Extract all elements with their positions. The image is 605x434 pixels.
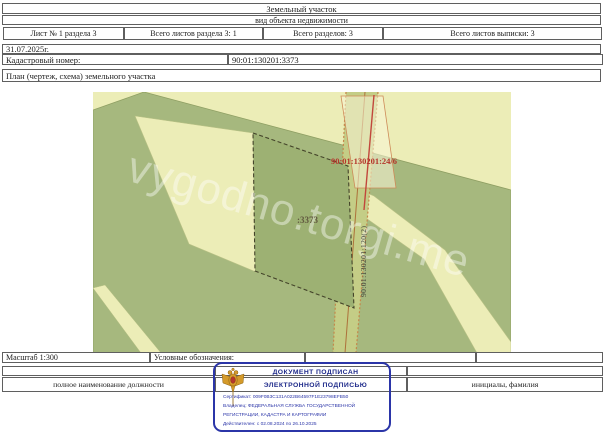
scale-label: Масштаб 1:300 (2, 352, 150, 363)
neighbor-parcel-label: 90:01:130201:24/6 (331, 156, 397, 166)
footer-name-cell: инициалы, фамилия (407, 377, 603, 392)
plan-header-row: План (чертеж, схема) земельного участка (2, 69, 601, 82)
doc-subtitle-row: вид объекта недвижимости (2, 15, 601, 25)
meta-cell-sheet: Лист № 1 раздела 3 (3, 27, 124, 40)
meta-cell-sections-total: Всего разделов: 3 (263, 27, 383, 40)
cadastral-value: 90:01:130201:3373 (228, 54, 603, 65)
stamp-line2: ЭЛЕКТРОННОЙ ПОДПИСЬЮ (245, 382, 386, 389)
meta-cell-extract-sheets: Всего листов выписки: 3 (383, 27, 602, 40)
doc-title-row: Земельный участок (2, 3, 601, 14)
extract-date: 31.07.2025г. (6, 44, 49, 54)
strip-cadastral-label: 90:01:130201:120(2) (359, 226, 368, 297)
legend-empty-cell-2 (476, 352, 603, 363)
stamp-owner-line1: Владелец: ФЕДЕРАЛЬНАЯ СЛУЖБА ГОСУДАРСТВЕ… (223, 404, 386, 409)
cadastral-extract-page: Земельный участок вид объекта недвижимос… (0, 0, 605, 434)
digital-signature-stamp: ДОКУМЕНТ ПОДПИСАН ЭЛЕКТРОННОЙ ПОДПИСЬЮ С… (213, 362, 391, 432)
plan-header: План (чертеж, схема) земельного участка (6, 71, 155, 81)
rosreestr-eagle-icon (220, 366, 246, 408)
parcel-number-label: :3373 (297, 215, 318, 225)
cadastral-label: Кадастровый номер: (2, 54, 228, 65)
footer-position-cell: полное наименование должности (2, 377, 215, 392)
stamp-owner-line2: РЕГИСТРАЦИИ, КАДАСТРА И КАРТОГРАФИИ (223, 413, 386, 418)
stamp-line1: ДОКУМЕНТ ПОДПИСАН (245, 369, 386, 376)
parcel-plan-map: vygodno.torgi.me 90:01:130201:24/6 :3373… (93, 92, 511, 353)
date-row: 31.07.2025г. (2, 44, 601, 54)
signature-blank-cell-1 (2, 366, 215, 376)
stamp-validity: Действителен: с 02.08.2024 по 26.10.2025 (223, 422, 386, 427)
stamp-certificate: Сертификат: 009F0B3C131A022B64597F1E2379… (223, 395, 386, 400)
doc-title: Земельный участок (266, 4, 336, 14)
parcel-plan-svg: vygodno.torgi.me 90:01:130201:24/6 :3373… (93, 92, 511, 353)
doc-subtitle: вид объекта недвижимости (255, 16, 348, 25)
meta-cell-sheets-of-section: Всего листов раздела 3: 1 (124, 27, 263, 40)
cadastral-row: Кадастровый номер: 90:01:130201:3373 (2, 54, 603, 65)
meta-row: Лист № 1 раздела 3 Всего листов раздела … (3, 27, 602, 40)
signature-blank-cell-3 (407, 366, 603, 376)
